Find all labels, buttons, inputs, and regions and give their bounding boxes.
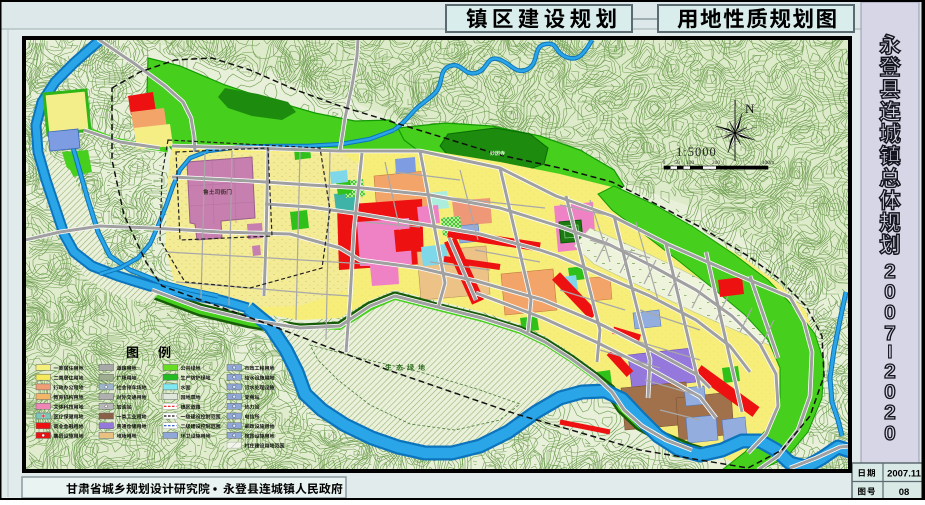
svg-text:1:5000: 1:5000 xyxy=(676,145,717,159)
svg-text:2: 2 xyxy=(884,401,895,424)
svg-text:0: 0 xyxy=(884,381,895,404)
svg-text:08: 08 xyxy=(899,487,910,498)
svg-text:0: 0 xyxy=(884,281,895,304)
svg-text:2: 2 xyxy=(884,260,895,283)
svg-text:N: N xyxy=(745,101,755,116)
svg-text:7: 7 xyxy=(884,322,895,345)
svg-text:2007.11: 2007.11 xyxy=(887,469,922,480)
svg-text:100: 100 xyxy=(686,160,695,166)
svg-text:0: 0 xyxy=(884,422,895,445)
svg-text:0: 0 xyxy=(663,160,666,166)
svg-text:200: 200 xyxy=(712,160,721,166)
svg-text:2: 2 xyxy=(884,360,895,383)
svg-text:0: 0 xyxy=(884,301,895,324)
svg-text:50: 50 xyxy=(674,160,680,166)
svg-text:400m: 400m xyxy=(762,160,775,166)
